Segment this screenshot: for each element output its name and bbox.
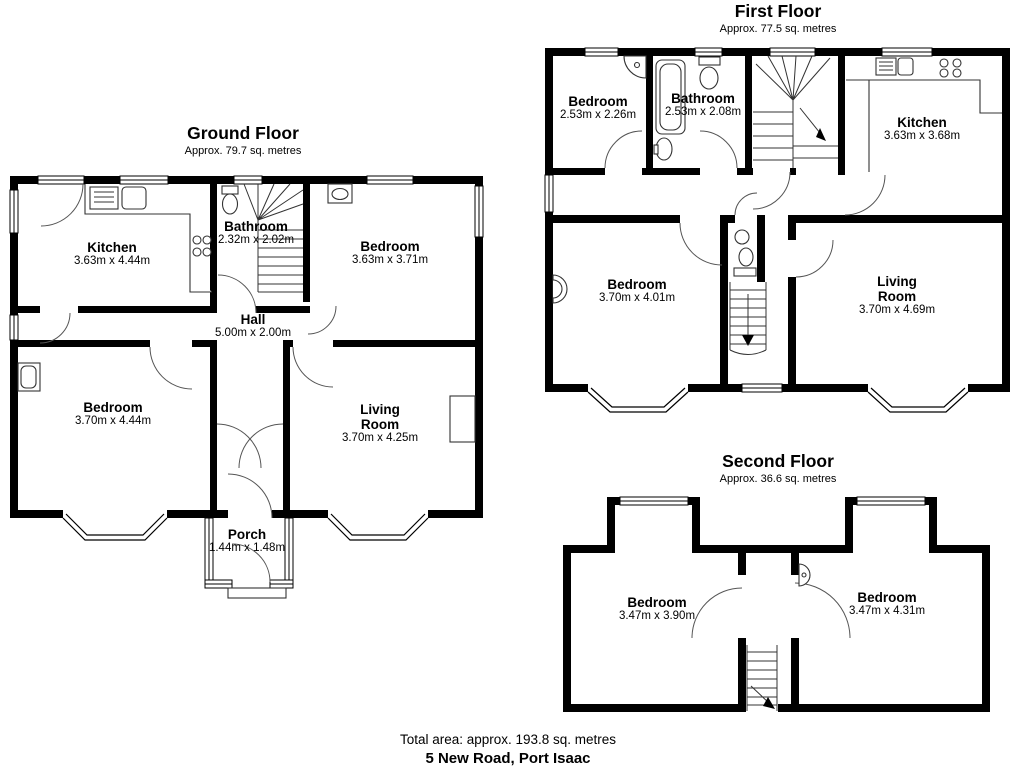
ground-kitchen-sink-icon	[90, 187, 146, 209]
room-label-ground-living: Living Room 3.70m x 4.25m	[342, 402, 418, 445]
floor-plan-svg	[0, 0, 1024, 768]
bay-window-ground-living	[328, 514, 428, 540]
first-floor-stairwell-icon	[753, 56, 838, 168]
bay-window-first-living	[868, 388, 968, 412]
room-label-ground-hall: Hall 5.00m x 2.00m	[215, 312, 291, 340]
room-label-ground-bedroom-top: Bedroom 3.63m x 3.71m	[352, 239, 428, 267]
ground-toilet-icon	[222, 186, 238, 214]
first-floor-stairs-down-icon	[730, 282, 766, 355]
second-floor-door-arcs	[692, 583, 850, 638]
floorplan-page: Ground Floor Approx. 79.7 sq. metres Fir…	[0, 0, 1024, 768]
first-wc-toilet-icon	[734, 248, 756, 276]
room-label-ground-bedroom-bottom: Bedroom 3.70m x 4.44m	[75, 400, 151, 428]
first-bathroom-sink-icon	[654, 138, 672, 160]
ground-floor-title: Ground Floor Approx. 79.7 sq. metres	[185, 124, 302, 157]
ground-bedroom-bl-sink-icon	[18, 363, 40, 391]
room-label-first-bedroom-bottom: Bedroom 3.70m x 4.01m	[599, 277, 675, 305]
first-bathroom-toilet-icon	[699, 57, 720, 89]
second-landing-sink-icon	[799, 564, 810, 586]
second-floor-windows	[620, 497, 925, 505]
first-bedroom-sink-icon	[553, 275, 567, 303]
bay-window-first-bedroom	[588, 388, 688, 412]
room-label-first-kitchen: Kitchen 3.63m x 3.68m	[884, 115, 960, 143]
address-text: 5 New Road, Port Isaac	[425, 750, 590, 767]
room-label-ground-bathroom: Bathroom 2.32m x 2.02m	[218, 219, 294, 247]
room-label-second-bedroom-right: Bedroom 3.47m x 4.31m	[849, 590, 925, 618]
room-label-first-living: Living Room 3.70m x 4.69m	[859, 274, 935, 317]
first-stove-icon	[940, 59, 961, 77]
porch-step	[228, 588, 286, 598]
bay-window-ground-bedroom	[63, 514, 167, 540]
ground-stove-icon	[193, 236, 211, 256]
second-floor-title: Second Floor Approx. 36.6 sq. metres	[720, 452, 837, 485]
first-kitchen-sink-icon	[876, 58, 913, 75]
first-wc-sink-icon	[735, 230, 749, 244]
room-label-first-bedroom-top: Bedroom 2.53m x 2.26m	[560, 94, 636, 122]
second-floor-stairs-icon	[747, 645, 777, 711]
room-label-first-bathroom: Bathroom 2.53m x 2.08m	[665, 91, 741, 119]
room-label-second-bedroom-left: Bedroom 3.47m x 3.90m	[619, 595, 695, 623]
total-area-text: Total area: approx. 193.8 sq. metres	[400, 732, 616, 747]
first-floor-title: First Floor Approx. 77.5 sq. metres	[720, 2, 837, 35]
ground-living-fireplace	[450, 396, 475, 442]
first-bedroom-corner-sink-icon	[624, 56, 646, 78]
room-label-ground-kitchen: Kitchen 3.63m x 4.44m	[74, 240, 150, 268]
room-label-ground-porch: Porch 1.44m x 1.48m	[209, 527, 285, 555]
ground-bedroom-sink-icon	[328, 184, 352, 203]
